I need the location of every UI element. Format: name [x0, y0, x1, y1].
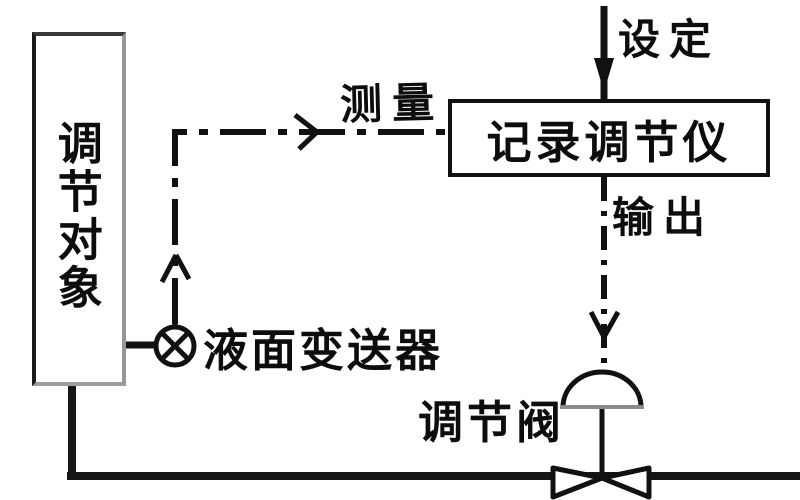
- controlled-object-label: 调节对象: [52, 120, 100, 312]
- level-transmitter-label: 液面变送器: [203, 314, 443, 379]
- controller-box: 记录调节仪: [448, 99, 770, 177]
- control-valve-label: 调节阀: [418, 386, 565, 451]
- control-valve-icon: [553, 372, 649, 497]
- setpoint-arrow-icon: [594, 58, 614, 92]
- output-label: 输出: [612, 184, 714, 245]
- measurement-line: [175, 132, 448, 324]
- feedback-line-vertical: [68, 382, 76, 478]
- measurement-arrow-up-icon: [162, 255, 189, 282]
- feedback-line-horizontal: [67, 472, 800, 480]
- setpoint-label: 设定: [618, 6, 720, 67]
- level-transmitter-icon: [156, 318, 194, 365]
- diagram-canvas: 调节对象 记录调节仪 设定 测量 输出 液面变送器 调节阀: [0, 0, 800, 500]
- valve-dome: [563, 372, 641, 407]
- controller-label: 记录调节仪: [486, 106, 731, 171]
- measurement-label: 测量: [339, 69, 445, 133]
